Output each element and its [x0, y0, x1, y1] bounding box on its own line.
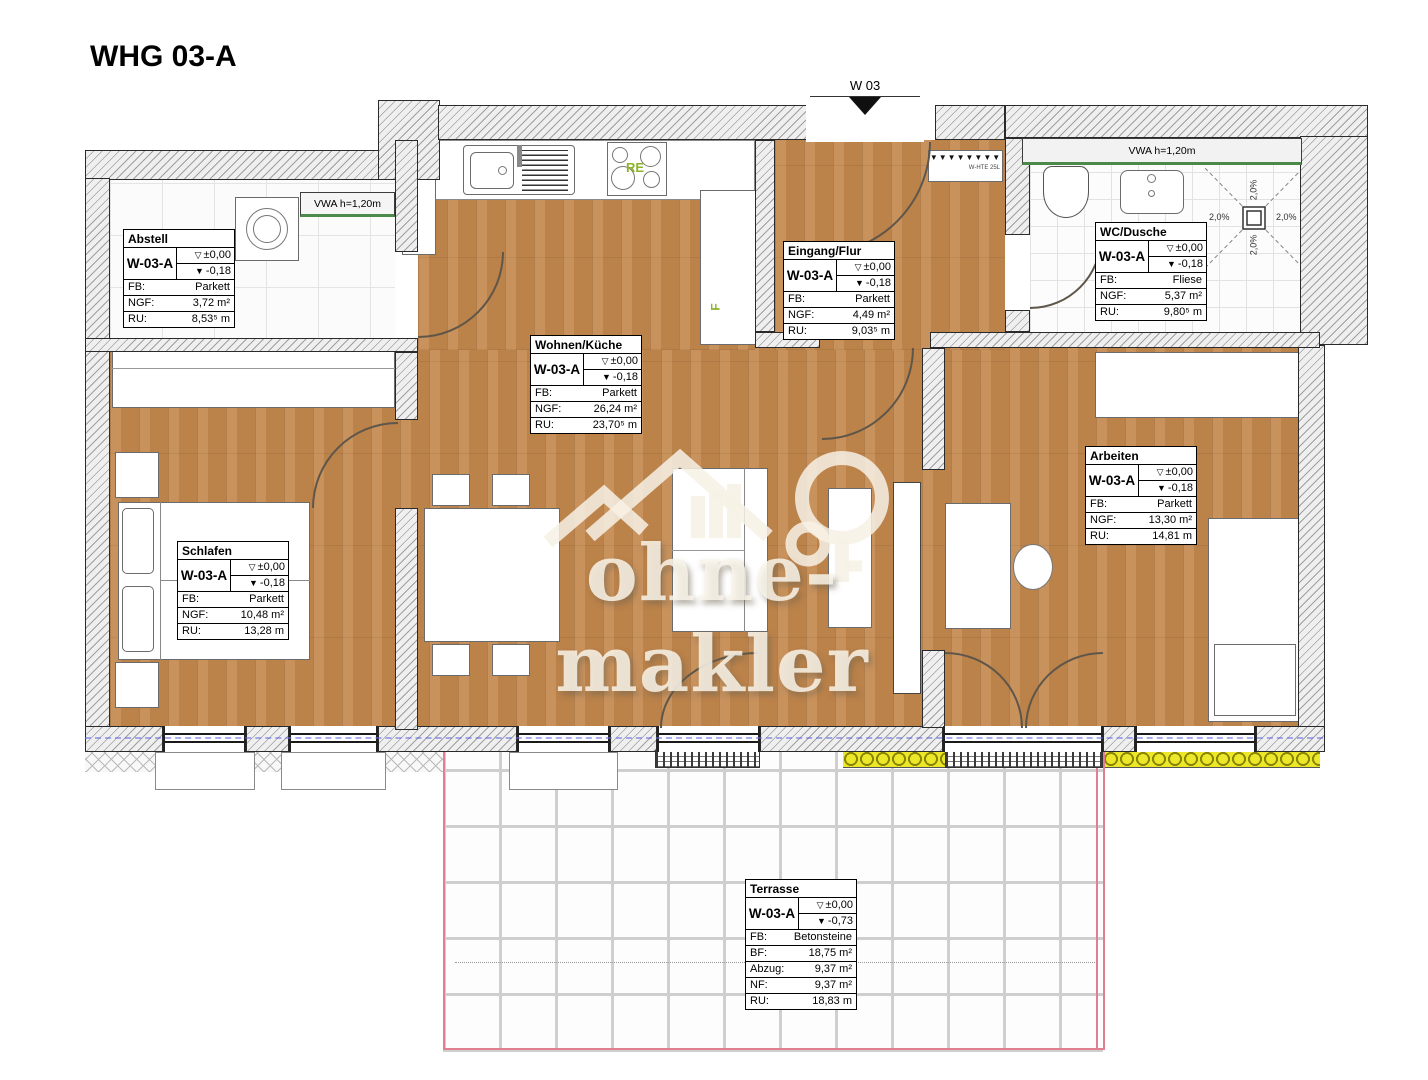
shower-slope-right: 2,0%	[1276, 212, 1297, 222]
lower-level: -0,18	[260, 578, 285, 589]
upper-level-icon: ▽	[602, 357, 609, 366]
bath-sink-faucet	[1147, 174, 1156, 183]
terrace-door-arbeiten	[943, 726, 1103, 752]
table-row: RU:14,81 m	[1086, 528, 1196, 544]
upper-level: ±0,00	[826, 900, 853, 911]
wall-bottom-seg	[85, 726, 163, 752]
pillow-2	[122, 586, 154, 652]
wall-bottom-seg	[760, 726, 943, 752]
room-info-schlafen: Schlafen W-03-A ▽±0,00 ▼-0,18 FB:Parkett…	[177, 541, 289, 640]
terrace-door-wohnen	[657, 726, 760, 752]
door-grating-living	[655, 750, 760, 768]
upper-level-icon: ▽	[1157, 468, 1164, 477]
sideboard	[828, 488, 872, 628]
room-name: Arbeiten	[1086, 447, 1196, 465]
desk	[945, 503, 1011, 629]
daybed-mattress	[1214, 644, 1296, 716]
lower-level-icon: ▼	[249, 579, 258, 588]
wall-top-bath	[1005, 105, 1368, 138]
upper-level-icon: ▽	[855, 263, 862, 272]
lower-level-icon: ▼	[817, 917, 826, 926]
wall-living-arbeiten-upper	[922, 348, 945, 470]
upper-level-icon: ▽	[1167, 244, 1174, 253]
axis-line-blue	[85, 737, 1323, 739]
toilet	[1043, 166, 1089, 218]
dining-table	[424, 508, 560, 642]
lower-level-icon: ▼	[855, 279, 864, 288]
table-row: RU:23,70⁵ m	[531, 417, 641, 433]
chair	[492, 474, 530, 506]
table-row: RU:9,80⁵ m	[1096, 304, 1206, 320]
wall-top-entrance-right	[935, 105, 1005, 140]
room-name: Eingang/Flur	[784, 242, 894, 260]
shower-slope-top: 2,0%	[1248, 180, 1258, 201]
sink-drainboard	[522, 150, 568, 191]
door-grating-arbeiten	[945, 750, 1103, 768]
sliding-door-panel	[893, 482, 921, 694]
table-row: FB:Parkett	[124, 279, 234, 295]
unit-id: W-03-A	[1086, 465, 1139, 496]
room-name: Schlafen	[178, 542, 288, 560]
table-row: FB:Betonsteine	[746, 929, 856, 945]
lower-level: -0,18	[866, 278, 891, 289]
upper-level: ±0,00	[1176, 243, 1203, 254]
room-info-wohnen: Wohnen/Küche W-03-A ▽±0,00 ▼-0,18 FB:Par…	[530, 335, 642, 434]
lower-level: -0,18	[1168, 483, 1193, 494]
lower-level-icon: ▼	[602, 373, 611, 382]
room-name: WC/Dusche	[1096, 223, 1206, 241]
wall-bath-bottom	[930, 332, 1320, 348]
wardrobe-schlafen	[112, 348, 395, 408]
wall-right-lower	[1298, 345, 1325, 730]
table-row: FB:Parkett	[784, 291, 894, 307]
pillow-1	[122, 508, 154, 574]
table-row: NGF:5,37 m²	[1096, 288, 1206, 304]
room-name: Terrasse	[746, 880, 856, 898]
table-row: RU:18,83 m	[746, 993, 856, 1009]
stove-code-label: RE	[626, 160, 644, 175]
window-sill-3	[509, 752, 618, 790]
chair	[432, 644, 470, 676]
chair	[432, 474, 470, 506]
upper-level: ±0,00	[204, 250, 231, 261]
table-row: NGF:10,48 m²	[178, 607, 288, 623]
chair	[492, 644, 530, 676]
entrance-label: W 03	[806, 76, 924, 93]
lower-level-icon: ▼	[1167, 260, 1176, 269]
wall-top-left	[85, 150, 395, 180]
sink-faucet	[517, 145, 522, 167]
table-row: RU:8,53⁵ m	[124, 311, 234, 327]
upper-level: ±0,00	[258, 562, 285, 573]
wall-schlafen-upper	[395, 352, 418, 420]
room-name: Wohnen/Küche	[531, 336, 641, 354]
terrace-border-right-inner	[1096, 752, 1098, 1050]
nightstand-2	[115, 662, 159, 708]
fridge-code-label: F	[709, 303, 723, 310]
table-row: NGF:4,49 m²	[784, 307, 894, 323]
window-schlafen-2	[289, 726, 378, 752]
nightstand-1	[115, 452, 159, 498]
room-info-arbeiten: Arbeiten W-03-A ▽±0,00 ▼-0,18 FB:Parkett…	[1085, 446, 1197, 545]
unit-id: W-03-A	[124, 248, 177, 279]
table-row: NGF:13,30 m²	[1086, 512, 1196, 528]
lower-level: -0,18	[206, 266, 231, 277]
unit-id: W-03-A	[1096, 241, 1149, 272]
burner	[643, 171, 660, 188]
table-row: FB:Parkett	[1086, 496, 1196, 512]
window-arbeiten	[1135, 726, 1256, 752]
window-wohnen	[517, 726, 610, 752]
wall-bottom-seg	[246, 726, 289, 752]
wall-left	[85, 178, 110, 730]
unit-id: W-03-A	[531, 354, 584, 385]
bed-headboard-line	[160, 502, 161, 660]
bath-sink-drain	[1148, 190, 1155, 197]
wall-kitchen-abstell	[395, 140, 418, 252]
shower-slope-bottom: 2,0%	[1248, 235, 1258, 256]
shower-slope-left: 2,0%	[1209, 212, 1230, 222]
sofa-backrest	[744, 468, 768, 632]
upper-level: ±0,00	[864, 262, 891, 273]
table-row: NGF:26,24 m²	[531, 401, 641, 417]
room-info-abstell: Abstell W-03-A ▽±0,00 ▼-0,18 FB:Parkett …	[123, 229, 235, 328]
table-row: FB:Fliese	[1096, 272, 1206, 288]
table-row: FB:Parkett	[531, 385, 641, 401]
lower-level-icon: ▼	[1157, 484, 1166, 493]
wall-abstell-schlafen	[85, 338, 418, 352]
desk-chair	[1013, 544, 1053, 590]
room-info-terrasse: Terrasse W-03-A ▽±0,00 ▼-0,73 FB:Betonst…	[745, 879, 857, 1010]
room-name: Abstell	[124, 230, 234, 248]
wall-right-upper-block	[1300, 136, 1368, 345]
room-info-eingang: Eingang/Flur W-03-A ▽±0,00 ▼-0,18 FB:Par…	[783, 241, 895, 340]
heater-symbols: ▼▼▼▼▼▼▼▼	[929, 151, 1002, 165]
window-sill-2	[281, 752, 386, 790]
upper-level-icon: ▽	[195, 251, 202, 260]
wall-kitchen-flur	[755, 140, 775, 332]
wardrobe-arbeiten	[1095, 352, 1300, 418]
entrance-marker: W 03	[806, 76, 924, 142]
window-sill-1	[155, 752, 255, 790]
lower-level: -0,18	[1178, 259, 1203, 270]
table-row: BF:18,75 m²	[746, 945, 856, 961]
terrace-border-left	[443, 752, 445, 1050]
wall-top-mid	[438, 105, 815, 140]
unit-id: W-03-A	[178, 560, 231, 591]
upper-level-icon: ▽	[249, 563, 256, 572]
upper-level-icon: ▽	[817, 901, 824, 910]
table-row: NF:9,37 m²	[746, 977, 856, 993]
table-row: Abzug:9,37 m²	[746, 961, 856, 977]
heater-code-label: W-HTE 25L	[929, 165, 1002, 171]
upper-level: ±0,00	[611, 356, 638, 367]
wall-bottom-seg	[1103, 726, 1135, 752]
page-title: WHG 03-A	[90, 40, 237, 74]
table-row: NGF:3,72 m²	[124, 295, 234, 311]
unit-id: W-03-A	[746, 898, 799, 929]
table-row: RU:13,28 m	[178, 623, 288, 639]
room-info-wc: WC/Dusche W-03-A ▽±0,00 ▼-0,18 FB:Fliese…	[1095, 222, 1207, 321]
lower-level-icon: ▼	[195, 267, 204, 276]
terrace-border-bottom	[443, 1048, 1105, 1050]
vwa-label-left: VWA h=1,20m	[300, 192, 395, 217]
floor-plan: WHG 03-A	[0, 0, 1428, 1080]
heater: ▼▼▼▼▼▼▼▼ W-HTE 25L	[928, 150, 1003, 182]
wall-schlafen-lower	[395, 508, 418, 730]
upper-level: ±0,00	[1166, 467, 1193, 478]
lower-level: -0,18	[613, 372, 638, 383]
lower-level: -0,73	[828, 916, 853, 927]
table-row: FB:Parkett	[178, 591, 288, 607]
wall-flur-bath-lower	[1005, 310, 1030, 332]
wall-living-arbeiten-lower	[922, 650, 945, 728]
unit-id: W-03-A	[784, 260, 837, 291]
vwa-label-right: VWA h=1,20m	[1022, 138, 1302, 165]
table-row: RU:9,03⁵ m	[784, 323, 894, 339]
window-schlafen-1	[163, 726, 246, 752]
fridge-column	[700, 190, 757, 345]
wardrobe-divider	[112, 368, 395, 369]
sink-drain	[498, 166, 507, 175]
wall-bottom-seg	[610, 726, 657, 752]
wall-bottom-seg	[1256, 726, 1325, 752]
sink-bowl	[470, 152, 514, 189]
entrance-arrow-icon	[849, 97, 881, 115]
insulation-crosshatch-band	[85, 752, 443, 772]
sofa-cushion-line	[672, 550, 744, 551]
washing-machine-drum-inner	[253, 215, 281, 243]
terrace-border-right-outer	[1103, 752, 1105, 1050]
